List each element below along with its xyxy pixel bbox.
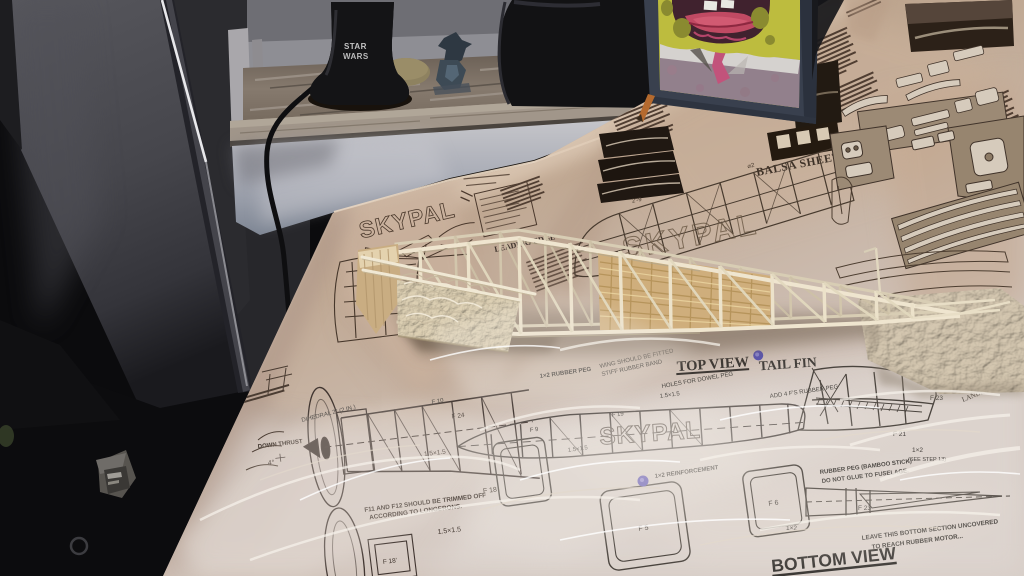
svg-text:STAR: STAR [344,42,367,51]
svg-text:WARS: WARS [343,52,369,61]
svg-text:1×2: 1×2 [912,447,923,454]
